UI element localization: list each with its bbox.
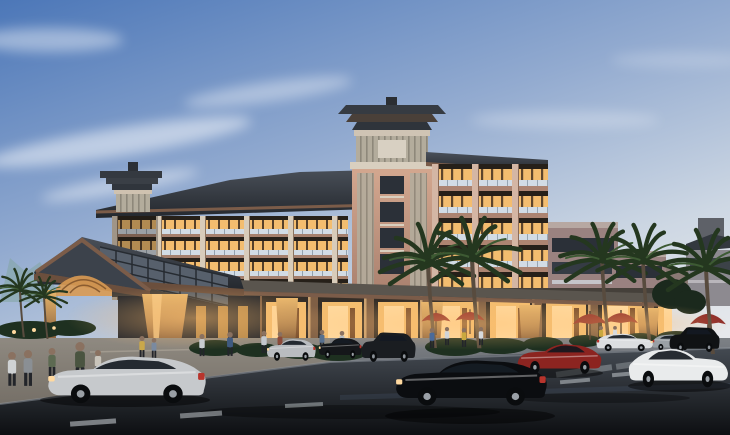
tower-cornice xyxy=(354,130,430,136)
cloud xyxy=(470,111,660,129)
bollard-light xyxy=(32,328,36,332)
turret-body xyxy=(116,194,150,212)
turret-eave xyxy=(100,171,162,178)
architectural-rendering xyxy=(0,0,730,435)
tower-finial xyxy=(386,97,397,106)
tower-eave xyxy=(346,114,438,122)
tower-eave xyxy=(352,122,432,130)
tower-window xyxy=(380,202,404,222)
tower-slat-panel xyxy=(357,173,374,294)
turret-eave xyxy=(106,178,158,184)
tower-eave xyxy=(338,105,446,114)
tower-cornice-lower xyxy=(350,162,434,169)
window-sill xyxy=(380,224,404,226)
rendering-canvas xyxy=(0,0,730,435)
turret-finial xyxy=(128,162,138,171)
block-b-parapet xyxy=(548,222,618,228)
turret-eave xyxy=(112,184,152,190)
window-sill xyxy=(380,196,404,198)
clerestory-panel xyxy=(378,140,406,158)
bollard-light xyxy=(12,330,16,334)
car-shadow xyxy=(385,408,555,424)
bollard-light xyxy=(52,326,56,330)
tower-window xyxy=(380,176,404,194)
tower-slat-panel xyxy=(410,173,427,294)
window-sill xyxy=(380,250,404,252)
turret-cornice xyxy=(114,190,152,194)
